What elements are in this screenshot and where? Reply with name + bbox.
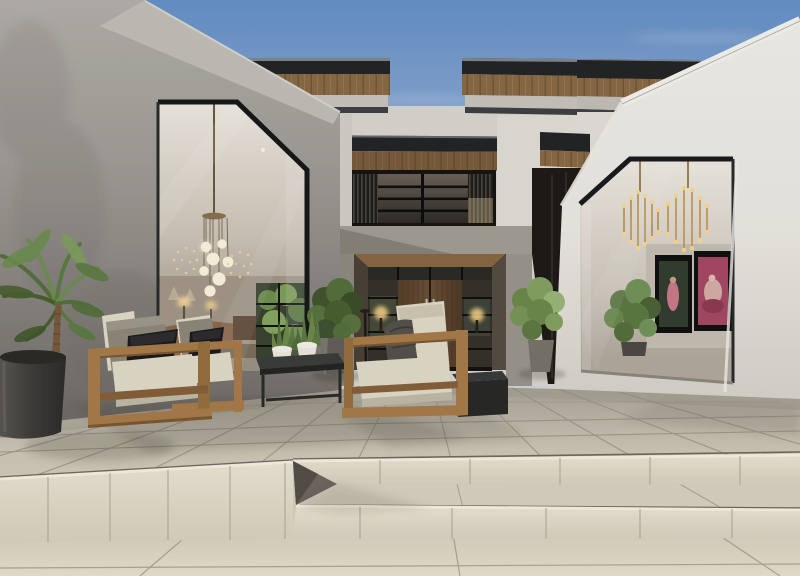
villa-scene	[0, 0, 800, 576]
render-viewport	[0, 0, 800, 576]
vignette	[0, 0, 800, 576]
